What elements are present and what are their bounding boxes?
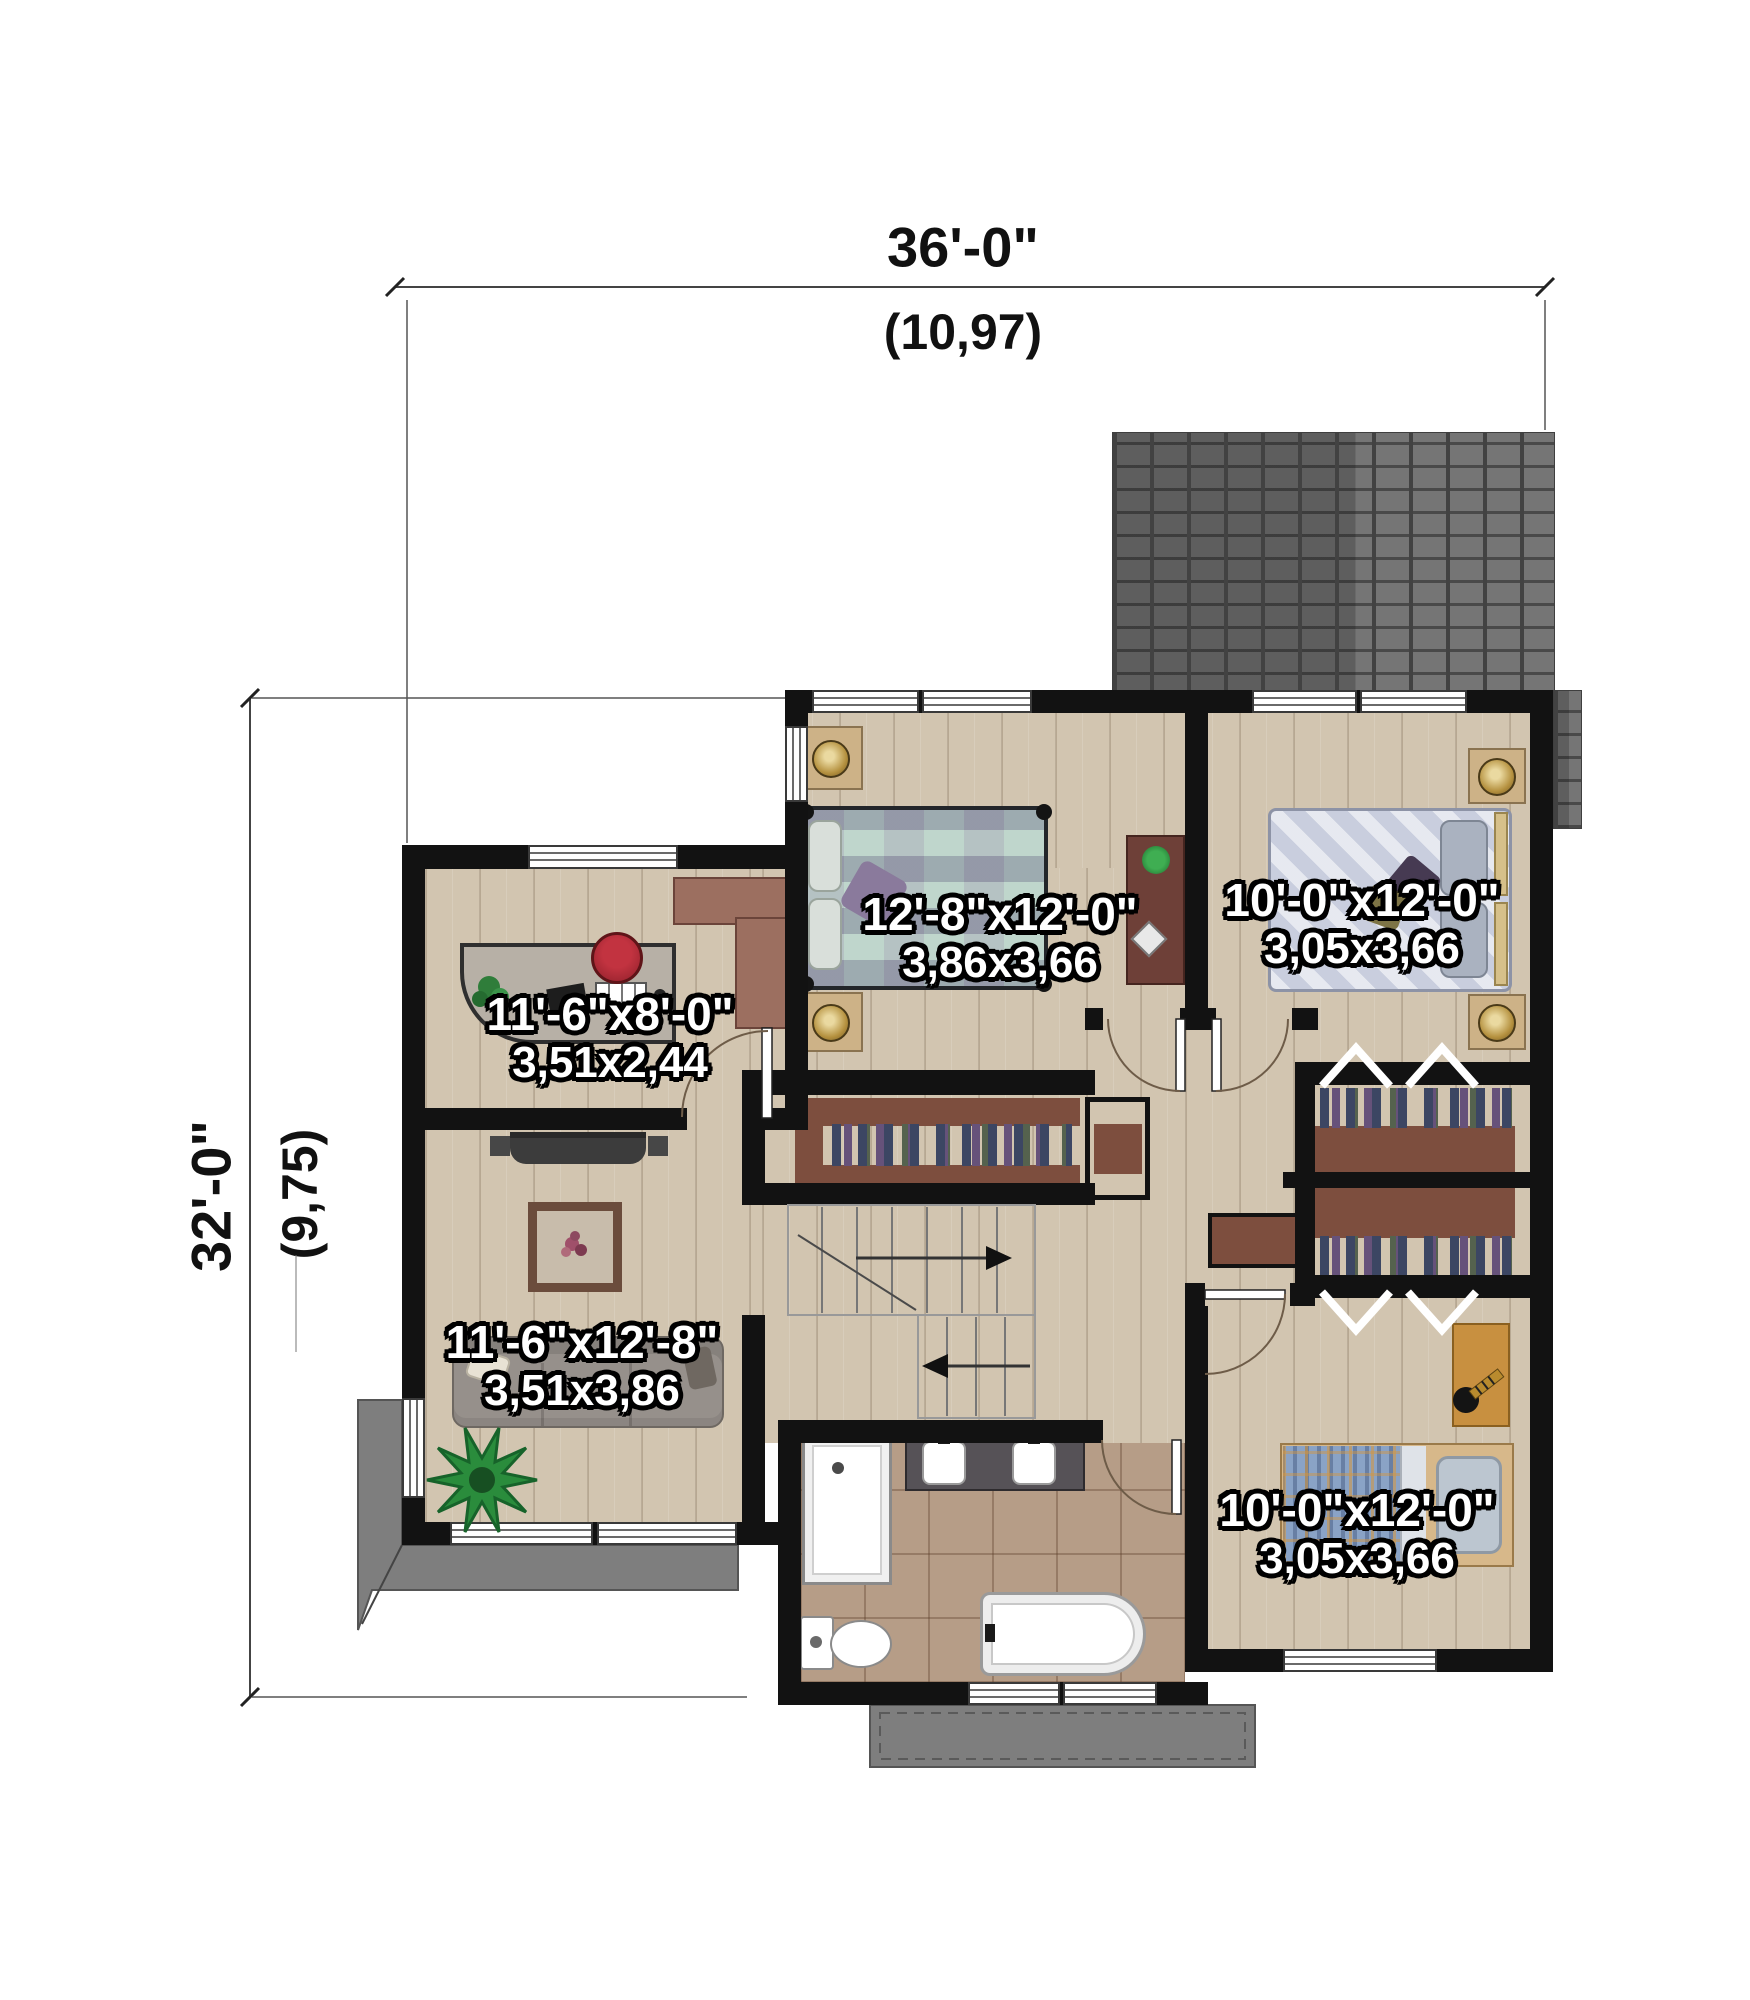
label-master-metric: 3,86x3,66 — [862, 939, 1137, 987]
label-living-metric: 3,51x3,86 — [446, 1367, 719, 1415]
label-living-imperial: 11'-6"x12'-8" — [446, 1317, 719, 1367]
label-bedroom-bottom-right: 10'-0"x12'-0" 3,05x3,66 — [1219, 1485, 1494, 1583]
label-office-metric: 3,51x2,44 — [486, 1039, 733, 1087]
label-bed3-metric: 3,05x3,66 — [1219, 1535, 1494, 1583]
label-master-imperial: 12'-8"x12'-0" — [862, 889, 1137, 939]
label-office-imperial: 11'-6"x8'-0" — [486, 989, 733, 1039]
label-office: 11'-6"x8'-0" 3,51x2,44 — [486, 989, 733, 1087]
label-living-room: 11'-6"x12'-8" 3,51x3,86 — [446, 1317, 719, 1415]
floor-plan: 36'-0" (10,97) 32'-0" (9,75) — [0, 0, 1750, 2000]
label-bedroom-top-right: 10'-0"x12'-0" 3,05x3,66 — [1224, 875, 1499, 973]
label-bed2-imperial: 10'-0"x12'-0" — [1224, 875, 1499, 925]
label-master-bedroom: 12'-8"x12'-0" 3,86x3,66 — [862, 889, 1137, 987]
label-bed2-metric: 3,05x3,66 — [1224, 925, 1499, 973]
plan-overlay — [0, 0, 1750, 2000]
label-bed3-imperial: 10'-0"x12'-0" — [1219, 1485, 1494, 1535]
